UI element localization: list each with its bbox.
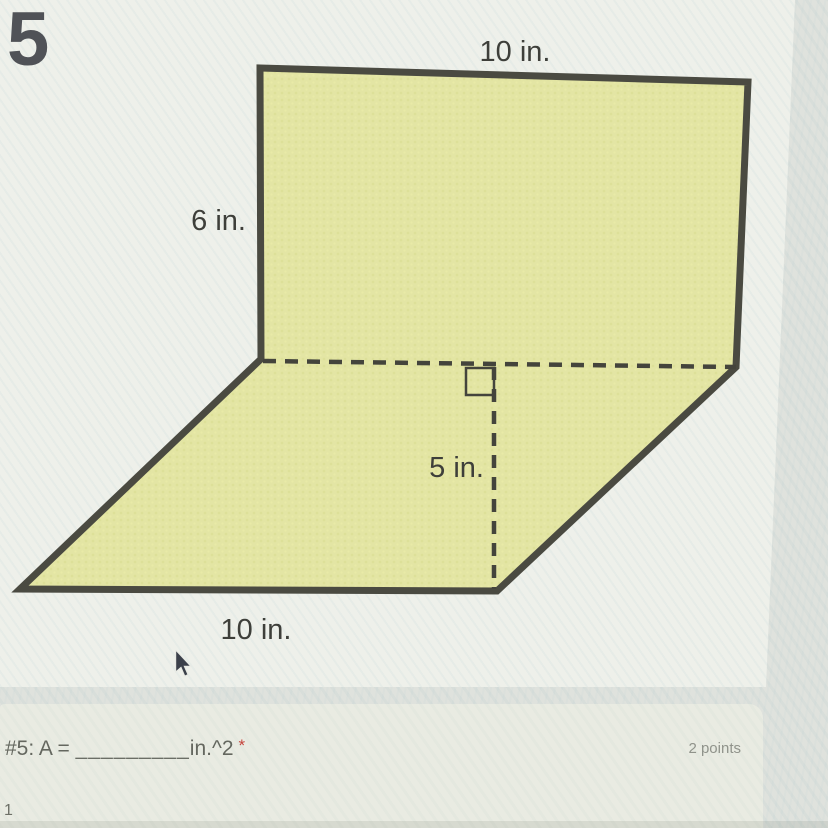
required-asterisk: * xyxy=(239,736,246,755)
points-badge: 2 points xyxy=(688,740,741,757)
label-bottom-width: 10 in. xyxy=(221,614,292,646)
composite-shape xyxy=(20,68,748,591)
label-top-width: 10 in. xyxy=(480,36,551,68)
question-card: #5: A = _________in.^2* 2 points 1 xyxy=(0,704,763,828)
geometry-figure: 10 in. 6 in. 5 in. 10 in. xyxy=(0,0,828,687)
answer-blank: _________ xyxy=(76,737,190,760)
answer-input-value[interactable]: 1 xyxy=(4,802,13,820)
label-inner-height: 5 in. xyxy=(429,452,484,484)
prompt-suffix: in.^2 xyxy=(190,737,234,760)
photo-background: 5 10 in. 6 in. 5 in. 10 in. xyxy=(0,0,828,828)
label-left-height: 6 in. xyxy=(191,205,246,237)
prompt-prefix: #5: A = xyxy=(5,737,76,760)
mouse-cursor-icon xyxy=(172,650,194,678)
figure-card: 5 10 in. 6 in. 5 in. 10 in. xyxy=(0,0,828,687)
bottom-edge-shadow xyxy=(0,821,828,828)
question-prompt: #5: A = _________in.^2* xyxy=(5,736,245,761)
